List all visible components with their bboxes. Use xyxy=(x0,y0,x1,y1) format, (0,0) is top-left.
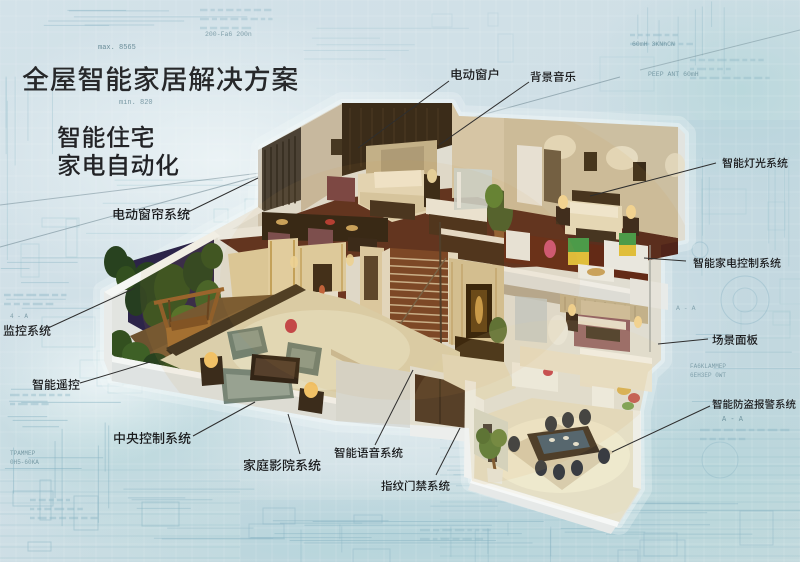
svg-text:60mH 3KNhCN: 60mH 3KNhCN xyxy=(632,41,675,48)
svg-text:max. 8565: max. 8565 xyxy=(98,44,136,52)
svg-text:A - A: A - A xyxy=(676,305,696,312)
svg-text:TPAMMEP: TPAMMEP xyxy=(10,450,36,457)
svg-text:min. 820: min. 820 xyxy=(119,99,153,107)
svg-text:0H5-60KA: 0H5-60KA xyxy=(10,459,39,466)
svg-text:A - A: A - A xyxy=(722,416,744,424)
svg-text:FA6KLAMMEP: FA6KLAMMEP xyxy=(690,363,726,370)
svg-text:200-Fa6 200n: 200-Fa6 200n xyxy=(205,31,252,38)
svg-text:6EH3EP 0WT: 6EH3EP 0WT xyxy=(690,372,726,379)
svg-text:PEEP ANT 60mH: PEEP ANT 60mH xyxy=(648,71,699,78)
svg-text:4 - A: 4 - A xyxy=(10,313,28,320)
